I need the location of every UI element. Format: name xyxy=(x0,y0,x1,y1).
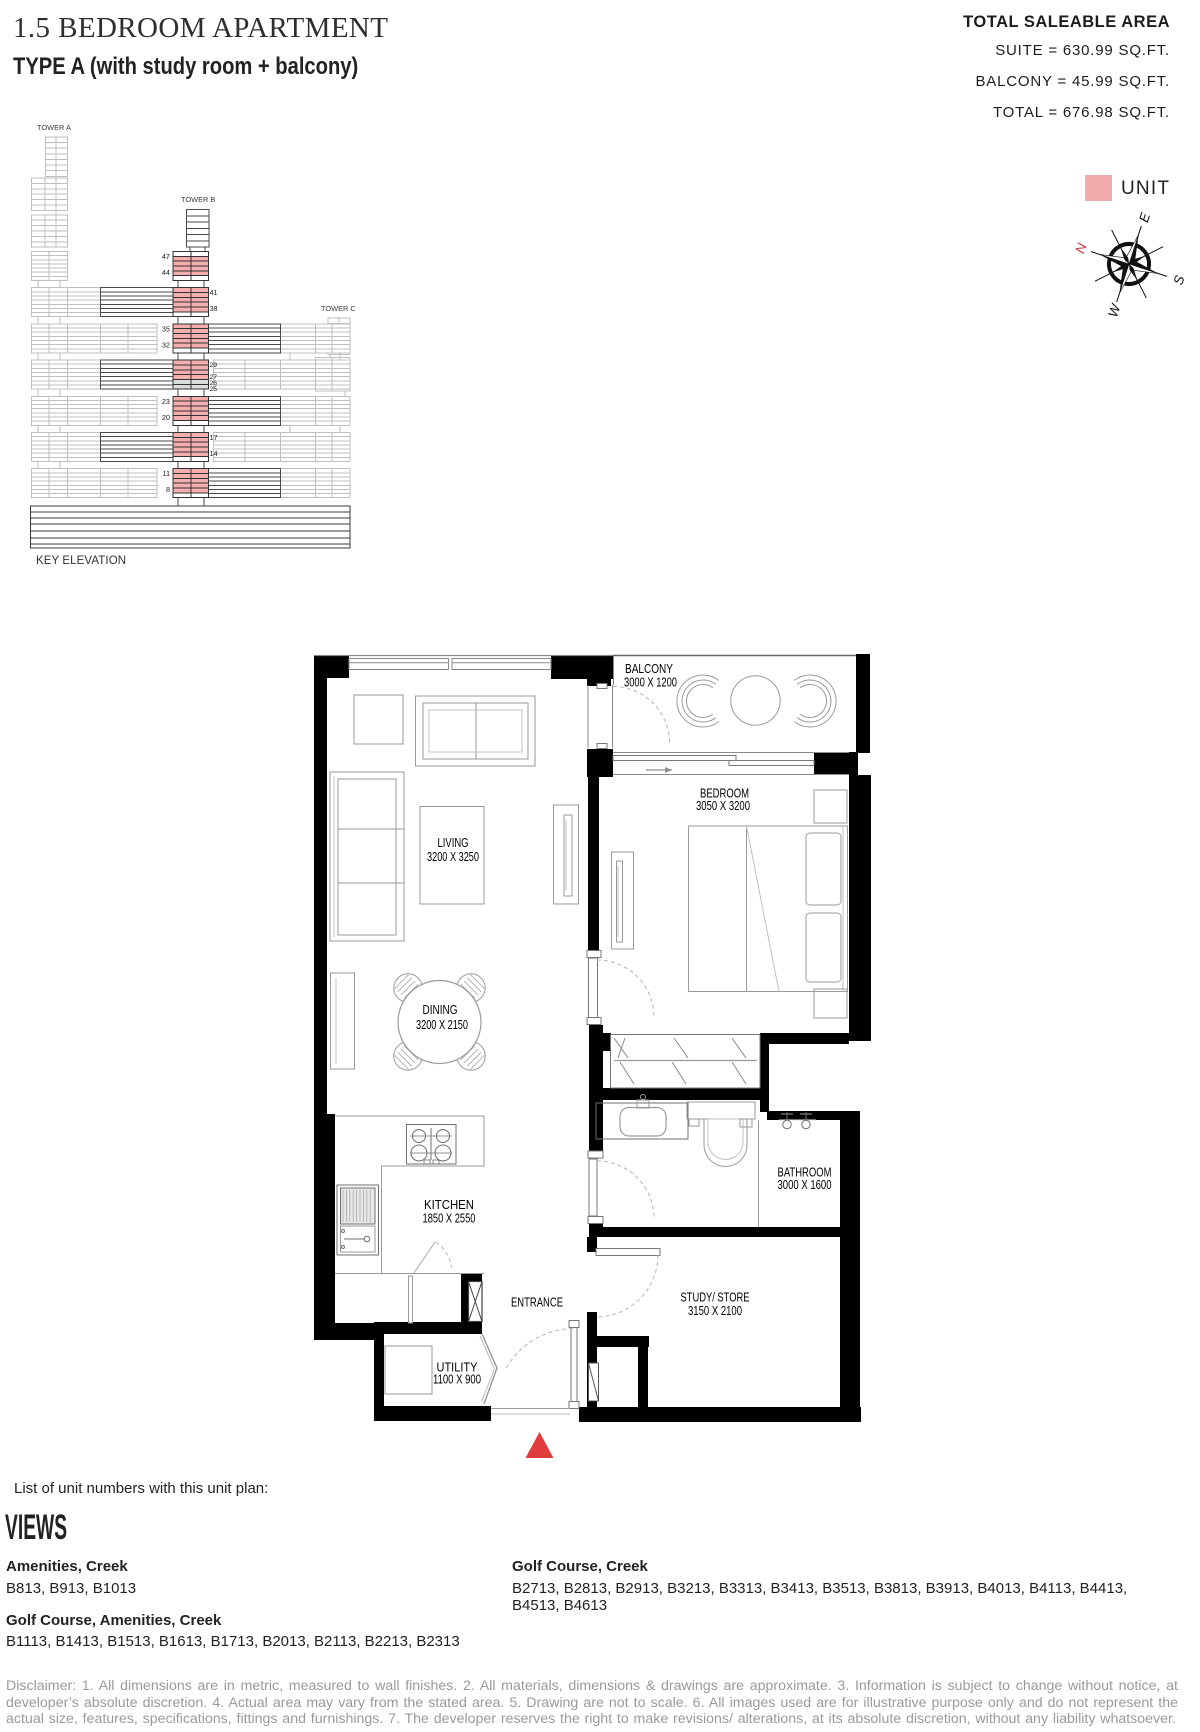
svg-text:3200 X 3250: 3200 X 3250 xyxy=(427,849,479,864)
svg-text:3050 X 3200: 3050 X 3200 xyxy=(696,798,750,813)
svg-text:LIVING: LIVING xyxy=(438,835,469,850)
svg-text:DINING: DINING xyxy=(423,1002,458,1017)
svg-text:3000 X 1600: 3000 X 1600 xyxy=(778,1177,832,1192)
svg-text:3200 X 2150: 3200 X 2150 xyxy=(416,1017,468,1032)
svg-text:1100 X 900: 1100 X 900 xyxy=(433,1372,481,1387)
svg-text:3000 X 1200: 3000 X 1200 xyxy=(624,675,677,690)
svg-text:3150 X 2100: 3150 X 2100 xyxy=(688,1303,742,1318)
svg-text:ENTRANCE: ENTRANCE xyxy=(511,1295,563,1310)
svg-text:1850 X 2550: 1850 X 2550 xyxy=(423,1211,476,1226)
